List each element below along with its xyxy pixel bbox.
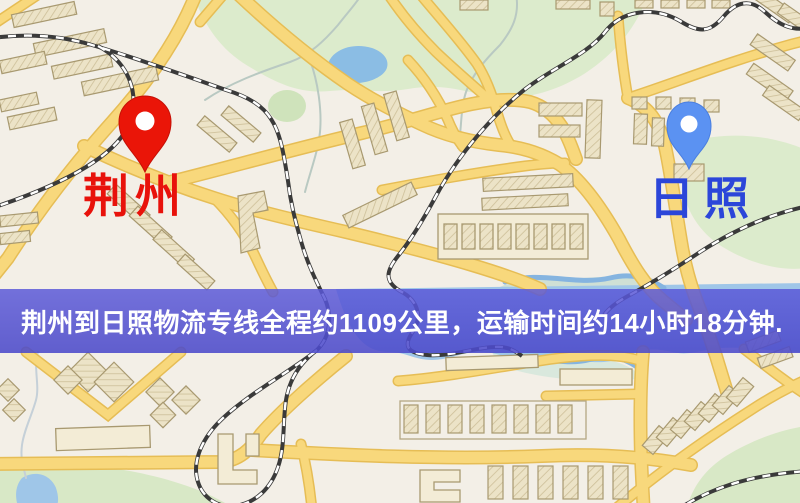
map-background [0, 0, 800, 503]
origin-city-label: 荆州 [83, 173, 187, 219]
route-info-banner: 荆州到日照物流专线全程约1109公里，运输时间约14小时18分钟. [0, 289, 800, 353]
map-screenshot: 荆州 日照 荆州到日照物流专线全程约1109公里，运输时间约14小时18分钟. [0, 0, 800, 503]
route-info-text: 荆州到日照物流专线全程约1109公里，运输时间约14小时18分钟. [0, 303, 783, 340]
destination-city-label: 日照 [649, 176, 759, 221]
